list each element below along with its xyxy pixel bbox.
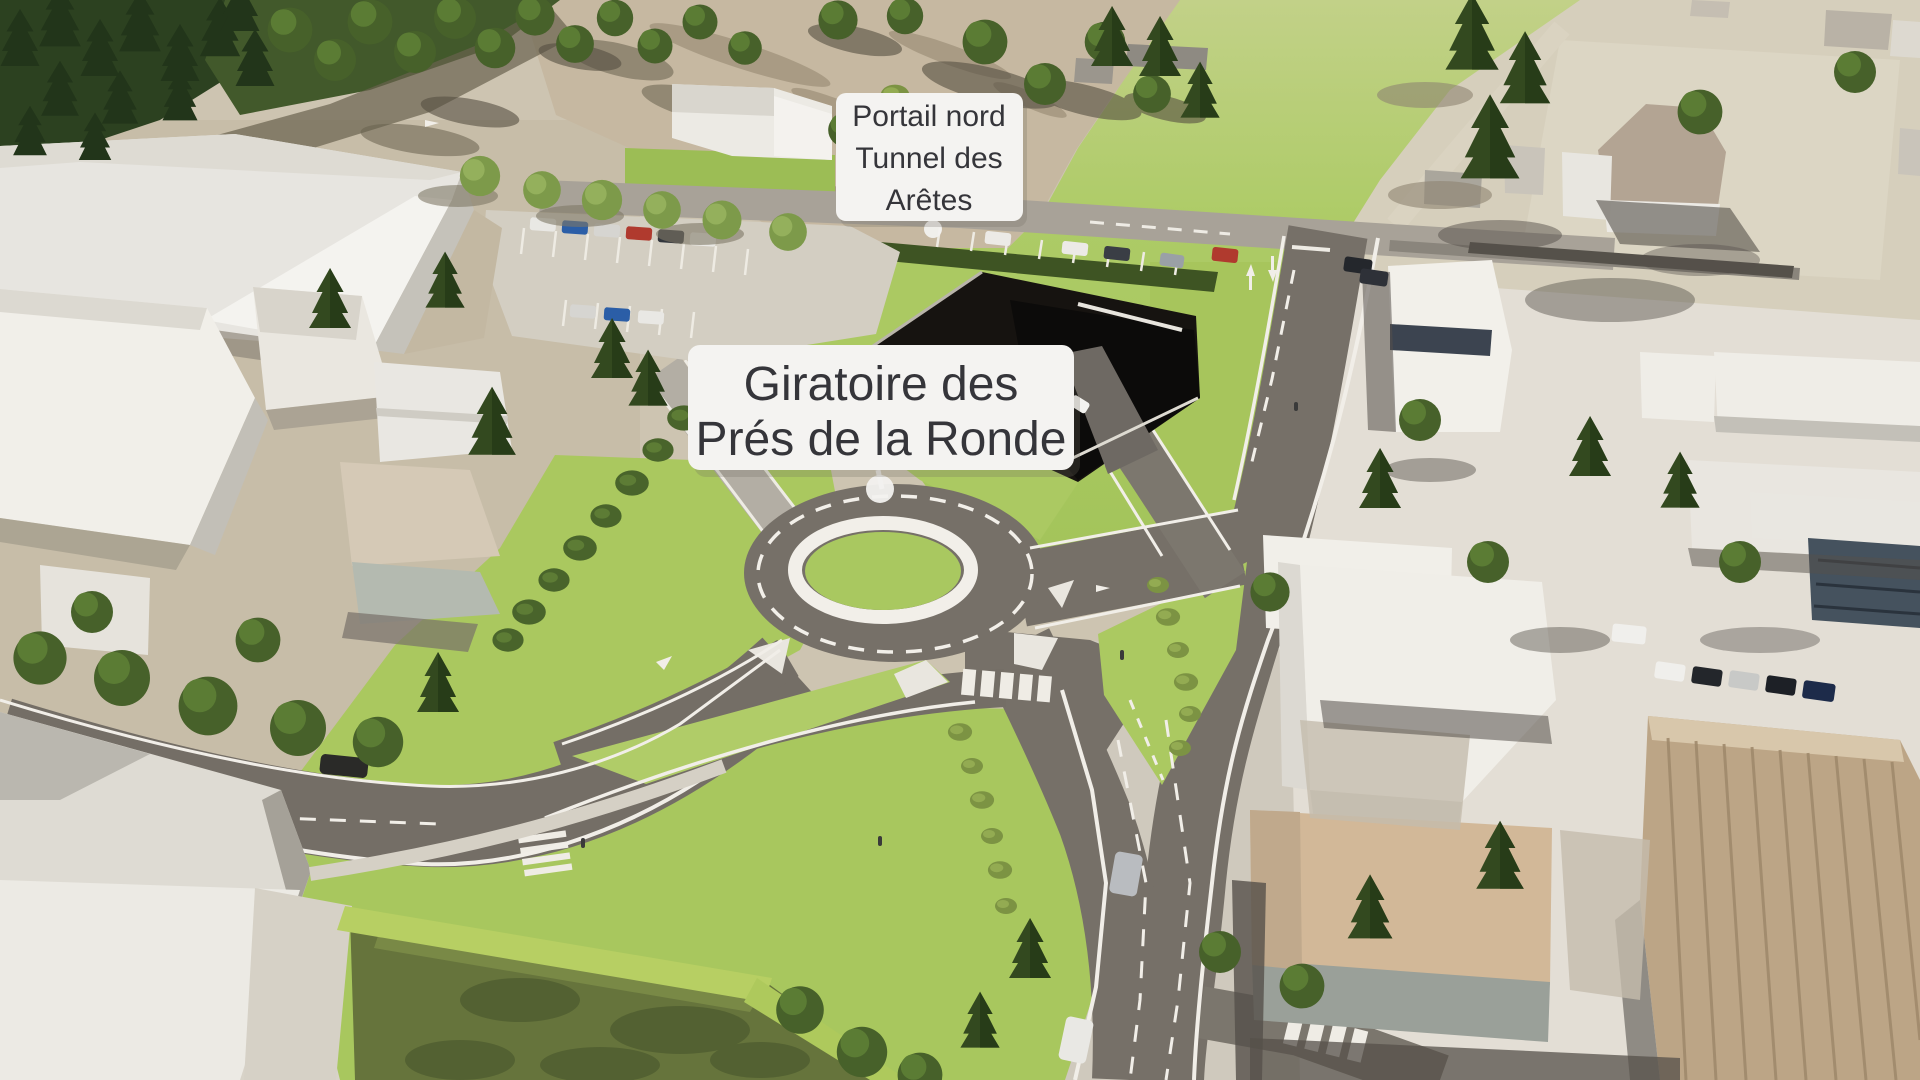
svg-text:Tunnel des: Tunnel des — [855, 142, 1002, 175]
svg-text:Giratoire des: Giratoire des — [744, 358, 1019, 411]
svg-text:Portail nord: Portail nord — [852, 100, 1005, 133]
svg-text:Prés de la Ronde: Prés de la Ronde — [696, 413, 1067, 466]
svg-text:Arêtes: Arêtes — [886, 184, 973, 217]
